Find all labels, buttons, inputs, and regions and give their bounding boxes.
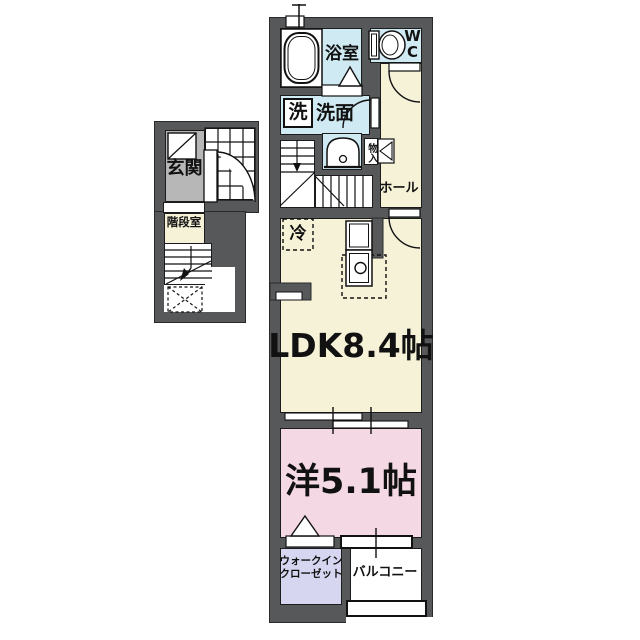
floor-plan-canvas: 浴室 W C 洗 洗面 物入 ホール 玄関 階段室 冷 LDK8.4帖 洋5.1… <box>0 0 640 640</box>
ldk-label: LDK8.4帖 <box>280 324 422 368</box>
entrance-step <box>163 202 205 213</box>
wic-label-line1: ウォークイン <box>278 556 344 568</box>
bathroom-label: 浴室 <box>320 45 364 65</box>
fridge-label: 冷 <box>283 221 313 249</box>
annex-open-area-right <box>205 267 235 312</box>
stairs-upper-flight-floor <box>280 140 315 208</box>
stairs-lower-flight-floor <box>315 175 373 208</box>
stairwell-label: 階段室 <box>162 215 206 229</box>
balcony-label: バルコニー <box>347 565 423 581</box>
washbasin-nook-floor <box>322 133 362 170</box>
toilet-label-c: C <box>403 44 422 61</box>
wic-label-line2: クローゼット <box>278 569 344 581</box>
western-room-label: 洋5.1帖 <box>280 459 422 505</box>
washroom-label: 洗面 <box>313 102 357 126</box>
entrance-porch-floor <box>205 128 255 200</box>
annex-open-area-bottom <box>164 285 205 312</box>
entrance-label: 玄関 <box>163 158 206 181</box>
washer-label: 洗 <box>283 98 313 128</box>
storage-label: 物入 <box>363 139 378 166</box>
balcony-bottom-trim <box>346 617 436 625</box>
hall-label: ホール <box>376 181 422 196</box>
